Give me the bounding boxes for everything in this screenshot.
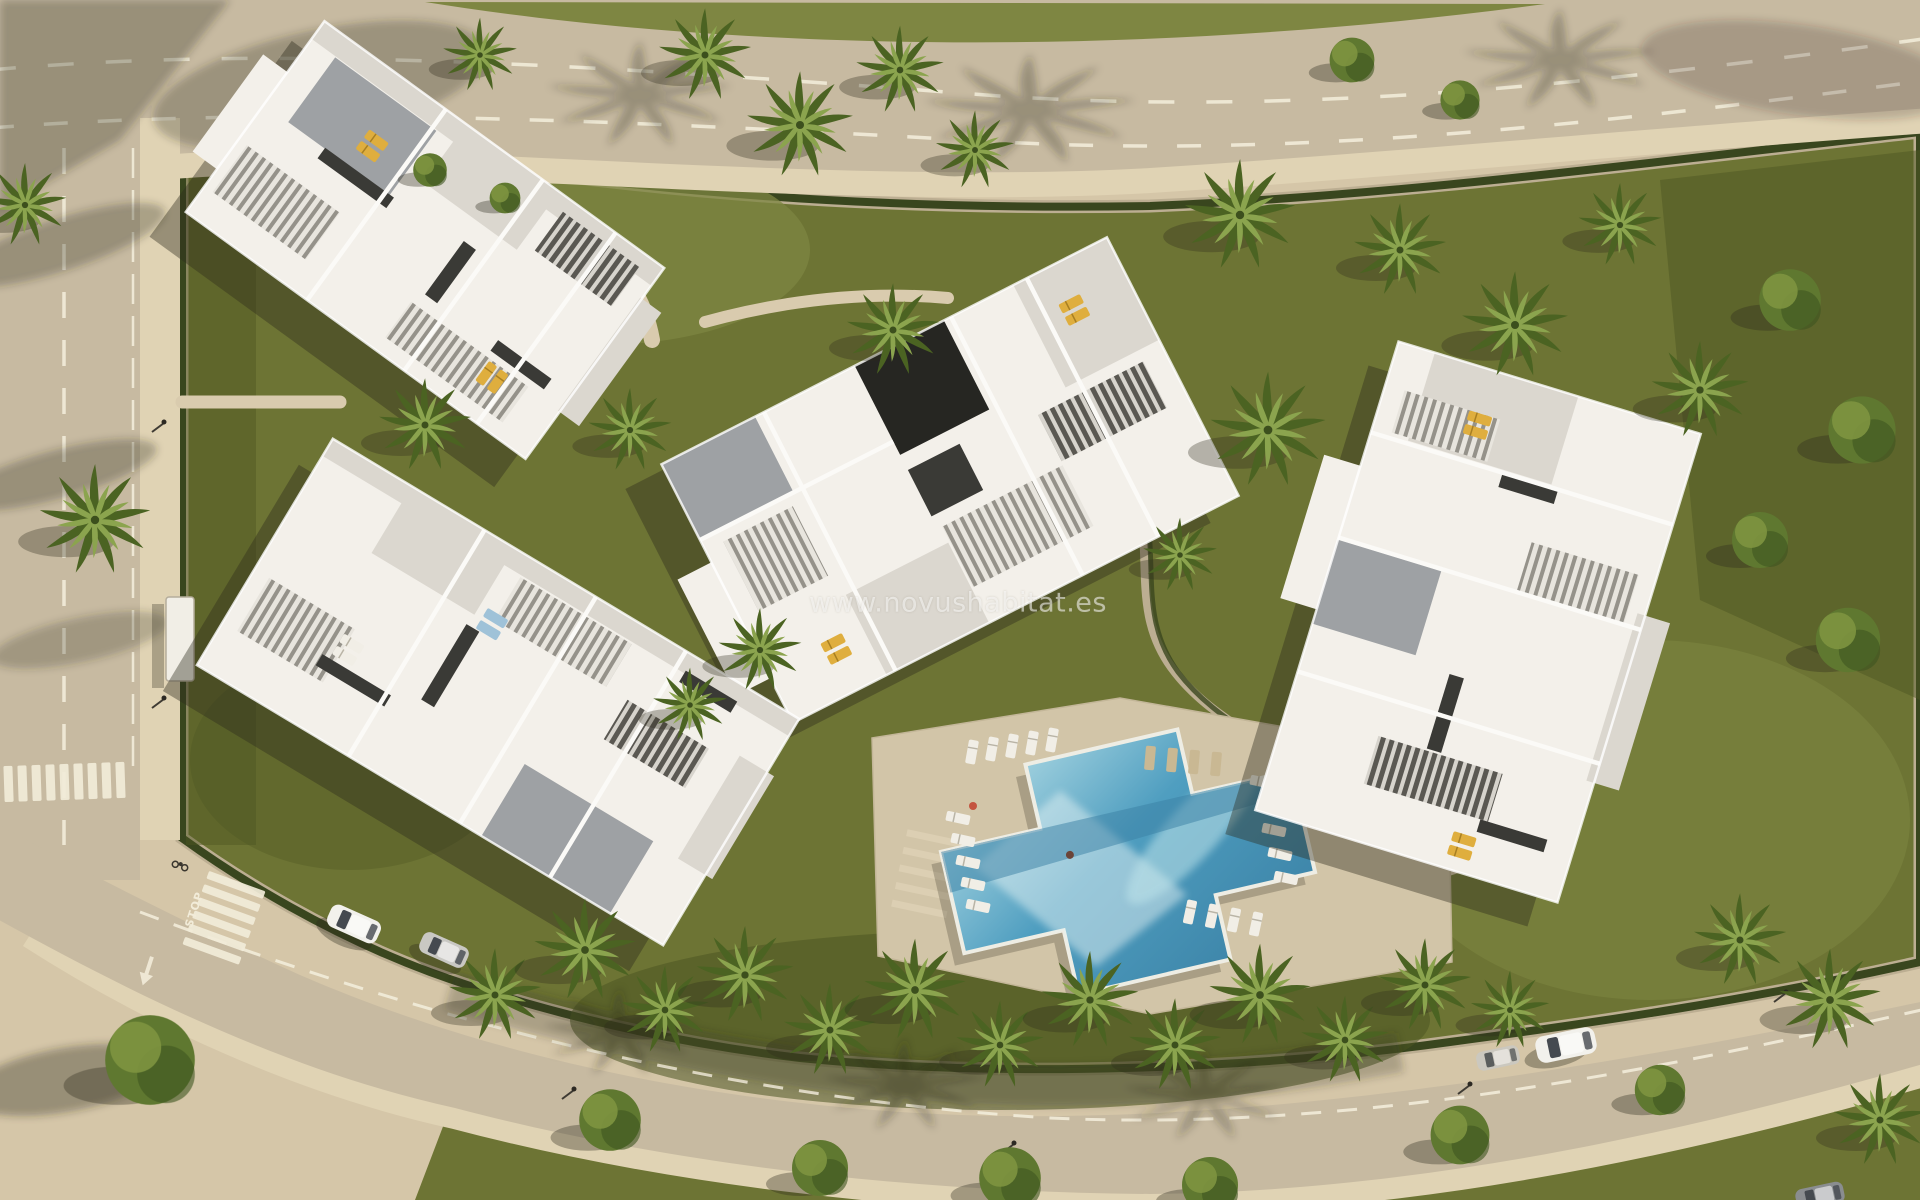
site-plan-svg: STOP <box>0 0 1920 1200</box>
crosswalk-left-road <box>3 762 125 802</box>
bus-shelter-shadow <box>152 604 164 688</box>
aerial-site-render: STOP <box>0 0 1920 1200</box>
person-on-deck <box>969 802 977 810</box>
